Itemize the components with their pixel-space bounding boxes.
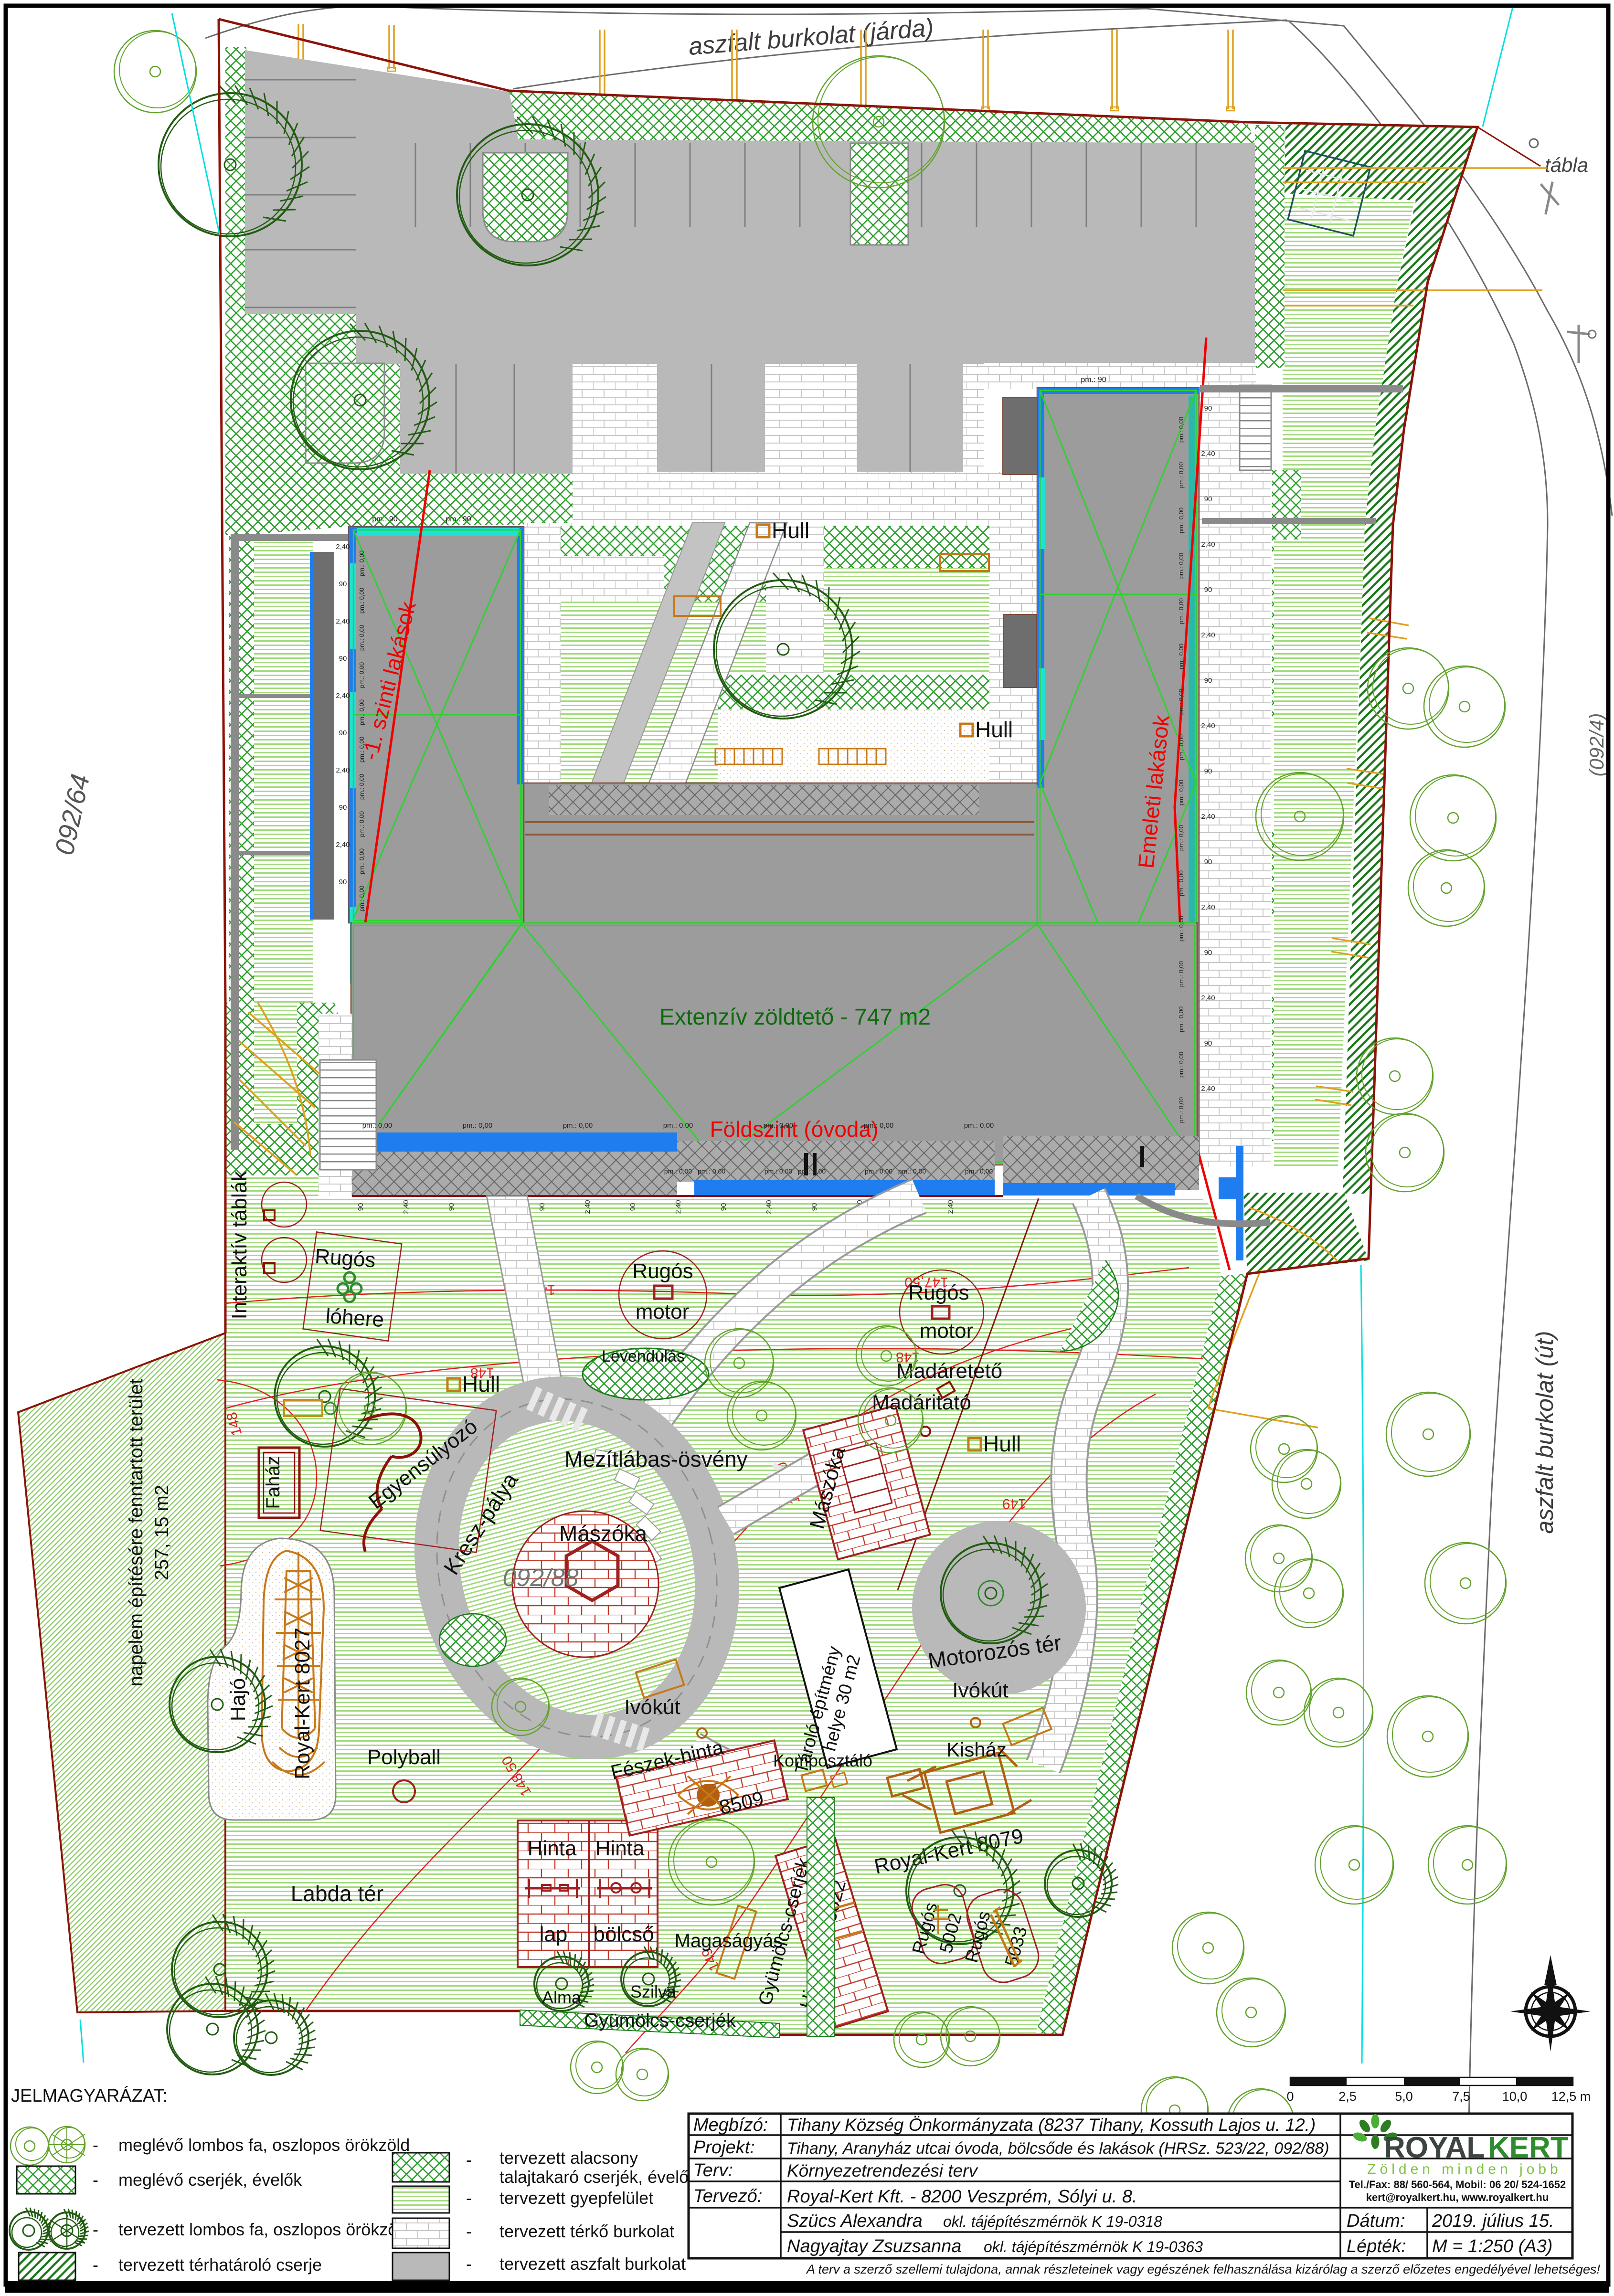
svg-text:meglévő cserjék, évelők: meglévő cserjék, évelők — [118, 2170, 302, 2190]
svg-text:-: - — [93, 2255, 98, 2275]
svg-text:Faház: Faház — [263, 1456, 284, 1509]
svg-text:tervezett térkő burkolat: tervezett térkő burkolat — [499, 2222, 674, 2241]
svg-text:12,5 m: 12,5 m — [1551, 2089, 1591, 2104]
svg-text:2,40: 2,40 — [336, 841, 350, 849]
svg-text:2,40: 2,40 — [336, 692, 350, 700]
svg-text:90: 90 — [1204, 495, 1212, 503]
svg-text:pm.: 0,00: pm.: 0,00 — [1178, 1052, 1185, 1078]
svg-text:-: - — [93, 2220, 98, 2239]
svg-text:2,5: 2,5 — [1338, 2089, 1357, 2104]
svg-text:90: 90 — [1204, 586, 1212, 594]
svg-text:pm.: 0,00: pm.: 0,00 — [765, 1167, 793, 1175]
svg-text:Szücs Alexandra: Szücs Alexandra — [787, 2211, 923, 2231]
svg-text:ROYAL: ROYAL — [1384, 2131, 1485, 2164]
svg-text:Ivókút: Ivókút — [952, 1679, 1008, 1702]
svg-text:pm.: 0,00: pm.: 0,00 — [698, 1167, 726, 1175]
svg-text:pm.: 0,00: pm.: 0,00 — [563, 1122, 593, 1130]
svg-text:2,40: 2,40 — [336, 617, 350, 625]
svg-text:90: 90 — [1204, 767, 1212, 775]
svg-text:90: 90 — [629, 1203, 637, 1211]
svg-text:Rugós: Rugós — [632, 1259, 693, 1283]
svg-text:Nagyajtay Zsuzsanna: Nagyajtay Zsuzsanna — [787, 2236, 961, 2256]
svg-text:90: 90 — [1204, 949, 1212, 957]
svg-text:pm.: 0,00: pm.: 0,00 — [1178, 1097, 1185, 1123]
svg-text:2,40: 2,40 — [946, 1200, 955, 1214]
svg-text:-: - — [466, 2254, 472, 2274]
svg-text:pm.: 0,00: pm.: 0,00 — [1178, 870, 1185, 896]
svg-text:-: - — [466, 2188, 472, 2208]
svg-text:Levendulás: Levendulás — [602, 1347, 685, 1365]
svg-text:pm.: 0,00: pm.: 0,00 — [1178, 780, 1185, 805]
svg-text:Tel./Fax: 88/ 560-564, Mobil:: Tel./Fax: 88/ 560-564, Mobil: 06 20/ 524… — [1349, 2179, 1566, 2190]
svg-text:pm.: 90: pm.: 90 — [372, 515, 397, 523]
svg-text:pm.: 0,00: pm.: 0,00 — [362, 1122, 393, 1130]
svg-text:Royal-Kert 8027: Royal-Kert 8027 — [291, 1628, 314, 1779]
svg-text:pm.: 0,00: pm.: 0,00 — [798, 1167, 826, 1175]
svg-text:Dátum:: Dátum: — [1347, 2211, 1405, 2231]
svg-text:90: 90 — [810, 1203, 818, 1211]
svg-text:okl. tájépítészmérnök K 19-03: okl. tájépítészmérnök K 19-0363 — [984, 2238, 1203, 2255]
svg-text:pm.: 0,00: pm.: 0,00 — [1178, 734, 1185, 760]
svg-text:Interaktív táblák: Interaktív táblák — [228, 1171, 251, 1320]
svg-text:pm.: 90: pm.: 90 — [446, 515, 471, 523]
svg-text:90: 90 — [357, 1203, 365, 1211]
svg-text:Alma: Alma — [542, 1988, 582, 2007]
svg-text:pm.: 0,00: pm.: 0,00 — [864, 1122, 894, 1130]
svg-text:Projekt:: Projekt: — [693, 2137, 755, 2158]
svg-text:tervezett lombos fa, oszlopos: tervezett lombos fa, oszlopos örökzöld — [118, 2220, 411, 2239]
svg-text:pm.: 0,00: pm.: 0,00 — [1178, 644, 1185, 669]
svg-text:Rugós: Rugós — [314, 1245, 376, 1272]
svg-text:90: 90 — [1204, 404, 1212, 413]
svg-text:-: - — [93, 2135, 98, 2155]
svg-text:aszfalt burkolat (út): aszfalt burkolat (út) — [1531, 1331, 1558, 1534]
svg-text:pm.: 0,00: pm.: 0,00 — [358, 811, 365, 837]
svg-text:2,40: 2,40 — [1201, 994, 1215, 1002]
svg-text:napelem építésére fenntartott: napelem építésére fenntartott terület — [126, 1379, 147, 1687]
svg-text:Hajó: Hajó — [226, 1678, 250, 1722]
svg-text:Tervező:: Tervező: — [693, 2186, 762, 2206]
svg-text:Tihany Község Önkormányzata: Tihany Község Önkormányzata (8237 Tihany… — [787, 2115, 1316, 2135]
svg-text:lóhere: lóhere — [325, 1304, 384, 1332]
svg-text:Megbízó:: Megbízó: — [693, 2115, 768, 2135]
svg-text:A terv a szerző szellemi tulaj: A terv a szerző szellemi tulajdona, anna… — [806, 2262, 1600, 2276]
svg-text:pm.: 0,00: pm.: 0,00 — [358, 588, 365, 614]
svg-text:2,40: 2,40 — [1201, 1085, 1215, 1093]
svg-text:90: 90 — [339, 804, 347, 812]
svg-text:2,40: 2,40 — [765, 1200, 773, 1214]
svg-text:7,5: 7,5 — [1452, 2089, 1470, 2104]
svg-text:90: 90 — [1204, 858, 1212, 866]
svg-text:90: 90 — [339, 878, 347, 886]
svg-text:pm.: 0,00: pm.: 0,00 — [663, 1122, 693, 1130]
svg-text:092/88: 092/88 — [502, 1564, 578, 1592]
svg-text:pm.: 0,00: pm.: 0,00 — [764, 1122, 794, 1130]
svg-text:tervezett alacsony: tervezett alacsony — [499, 2148, 638, 2168]
svg-text:KERT: KERT — [1488, 2131, 1569, 2164]
svg-text:pm.: 0,00: pm.: 0,00 — [358, 737, 365, 762]
svg-text:2,40: 2,40 — [1201, 722, 1215, 730]
svg-text:pm.: 0,00: pm.: 0,00 — [1178, 417, 1185, 443]
svg-text:2,40: 2,40 — [1201, 631, 1215, 639]
svg-text:pm.: 0,00: pm.: 0,00 — [964, 1122, 994, 1130]
svg-text:Labda tér: Labda tér — [291, 1881, 383, 1906]
svg-text:2,40: 2,40 — [1201, 540, 1215, 549]
svg-text:(092/4): (092/4) — [1585, 713, 1608, 776]
svg-text:-: - — [466, 2222, 472, 2241]
svg-text:Környezetrendezési terv: Környezetrendezési terv — [787, 2161, 978, 2180]
svg-text:2,40: 2,40 — [584, 1200, 592, 1214]
svg-text:Zölden minden jobb: Zölden minden jobb — [1367, 2161, 1562, 2177]
svg-text:Gyümölcs-cserjék: Gyümölcs-cserjék — [584, 2010, 736, 2031]
svg-text:Komposztáló: Komposztáló — [773, 1751, 872, 1770]
svg-text:Kisház: Kisház — [946, 1738, 1007, 1761]
svg-text:2,40: 2,40 — [402, 1200, 410, 1214]
svg-text:149: 149 — [1002, 1496, 1026, 1512]
svg-text:pm.: 0,00: pm.: 0,00 — [358, 886, 365, 911]
svg-text:pm.: 0,00: pm.: 0,00 — [358, 550, 365, 576]
svg-text:5,0: 5,0 — [1395, 2089, 1413, 2104]
svg-text:Mezítlábas-ösvény: Mezítlábas-ösvény — [564, 1447, 748, 1471]
svg-text:Hinta: Hinta — [528, 1837, 577, 1860]
svg-text:tábla: tábla — [1545, 154, 1588, 176]
svg-text:pm.: 0,00: pm.: 0,00 — [1178, 553, 1185, 579]
svg-text:pm.: 0,00: pm.: 0,00 — [463, 1122, 493, 1130]
svg-text:tervezett aszfalt burkolat: tervezett aszfalt burkolat — [499, 2254, 686, 2274]
svg-text:-: - — [466, 2150, 472, 2169]
svg-text:motor: motor — [920, 1319, 973, 1343]
svg-text:Hull: Hull — [772, 518, 809, 543]
svg-text:pm.: 0,00: pm.: 0,00 — [1178, 825, 1185, 851]
svg-text:Extenzív zöldtető - 747 m2: Extenzív zöldtető - 747 m2 — [659, 1005, 931, 1030]
svg-text:Hull: Hull — [983, 1431, 1021, 1456]
svg-text:pm.: 0,00: pm.: 0,00 — [1178, 462, 1185, 488]
svg-text:90: 90 — [1204, 677, 1212, 685]
svg-text:pm.: 0,00: pm.: 0,00 — [358, 662, 365, 688]
svg-text:257, 15 m2: 257, 15 m2 — [151, 1485, 172, 1580]
svg-text:2,40: 2,40 — [336, 766, 350, 774]
svg-text:meglévő lombos fa, oszlopos ör: meglévő lombos fa, oszlopos örökzöld — [118, 2135, 410, 2155]
svg-text:Hull: Hull — [462, 1372, 500, 1397]
svg-text:pm.: 0,00: pm.: 0,00 — [358, 774, 365, 800]
svg-text:90: 90 — [447, 1203, 456, 1211]
svg-text:Rugós: Rugós — [908, 1281, 969, 1304]
svg-text:90: 90 — [339, 655, 347, 663]
svg-text:bölcső: bölcső — [593, 1923, 654, 1946]
svg-text:pm.: 0,00: pm.: 0,00 — [358, 699, 365, 725]
svg-text:pm.: 0,00: pm.: 0,00 — [1178, 1006, 1185, 1032]
svg-text:JELMAGYARÁZAT:: JELMAGYARÁZAT: — [11, 2085, 168, 2106]
svg-text:pm.: 0,00: pm.: 0,00 — [865, 1167, 893, 1175]
svg-text:tervezett gyepfelület: tervezett gyepfelület — [499, 2188, 653, 2208]
svg-text:pm.: 0,00: pm.: 0,00 — [358, 625, 365, 651]
svg-text:2,40: 2,40 — [1201, 903, 1215, 911]
svg-text:Lépték:: Lépték: — [1347, 2236, 1406, 2256]
svg-text:motor: motor — [636, 1300, 689, 1323]
svg-text:pm.: 0,00: pm.: 0,00 — [358, 848, 365, 874]
svg-text:pm.: 0,00: pm.: 0,00 — [1178, 961, 1185, 987]
svg-text:90: 90 — [339, 580, 347, 588]
svg-text:pm.: 0,00: pm.: 0,00 — [898, 1167, 926, 1175]
svg-text:pm.: 0,00: pm.: 0,00 — [965, 1167, 993, 1175]
svg-text:Polyball: Polyball — [367, 1746, 441, 1769]
svg-text:2019. július 15.: 2019. július 15. — [1432, 2211, 1554, 2231]
svg-text:10,0: 10,0 — [1502, 2089, 1528, 2104]
svg-text:Ivókút: Ivókút — [624, 1695, 680, 1719]
svg-text:pm.: 0,00: pm.: 0,00 — [664, 1167, 692, 1175]
svg-text:lap: lap — [540, 1923, 568, 1946]
svg-text:2,40: 2,40 — [336, 543, 350, 551]
svg-text:tervezett térhatároló cserje: tervezett térhatároló cserje — [118, 2255, 322, 2275]
svg-text:pm.: 0,00: pm.: 0,00 — [1178, 598, 1185, 624]
svg-text:pm.: 0,00: pm.: 0,00 — [1178, 689, 1185, 715]
svg-text:Szilva: Szilva — [630, 1982, 677, 2001]
svg-text:2,40: 2,40 — [674, 1200, 682, 1214]
svg-text:pm.: 0,00: pm.: 0,00 — [1178, 916, 1185, 942]
svg-text:90: 90 — [538, 1203, 546, 1211]
svg-text:Mászóka: Mászóka — [559, 1521, 647, 1546]
svg-text:90: 90 — [720, 1203, 728, 1211]
svg-text:Terv:: Terv: — [693, 2160, 733, 2180]
svg-text:Tihany, Aranyház utcai óvoda,: Tihany, Aranyház utcai óvoda, bölcsőde é… — [787, 2139, 1329, 2158]
svg-text:Földszint (óvoda): Földszint (óvoda) — [710, 1117, 879, 1142]
svg-text:0: 0 — [1286, 2089, 1294, 2104]
svg-text:pm.: 0,00: pm.: 0,00 — [1178, 508, 1185, 533]
svg-text:Royal-Kert Kft. - 8200 Veszpr: Royal-Kert Kft. - 8200 Veszprém, Sólyi u… — [787, 2187, 1137, 2207]
svg-text:Hull: Hull — [975, 717, 1013, 742]
svg-text:kert@royalkert.hu, www.royalke: kert@royalkert.hu, www.royalkert.hu — [1366, 2191, 1549, 2203]
svg-text:M = 1:250 (A3): M = 1:250 (A3) — [1432, 2236, 1552, 2256]
svg-text:Hinta: Hinta — [595, 1837, 645, 1860]
svg-text:talajtakaró cserjék, évelők: talajtakaró cserjék, évelők — [499, 2167, 698, 2187]
svg-text:pm.: 90: pm.: 90 — [1081, 376, 1106, 384]
svg-text:-: - — [93, 2170, 98, 2190]
svg-text:90: 90 — [339, 729, 347, 737]
svg-text:2,40: 2,40 — [1201, 450, 1215, 458]
svg-text:okl. tájépítészmérnök K 19-03: okl. tájépítészmérnök K 19-0318 — [943, 2213, 1162, 2230]
svg-text:90: 90 — [1204, 1039, 1212, 1047]
svg-text:2,40: 2,40 — [1201, 813, 1215, 821]
svg-text:Magaságyás: Magaságyás — [675, 1930, 783, 1951]
